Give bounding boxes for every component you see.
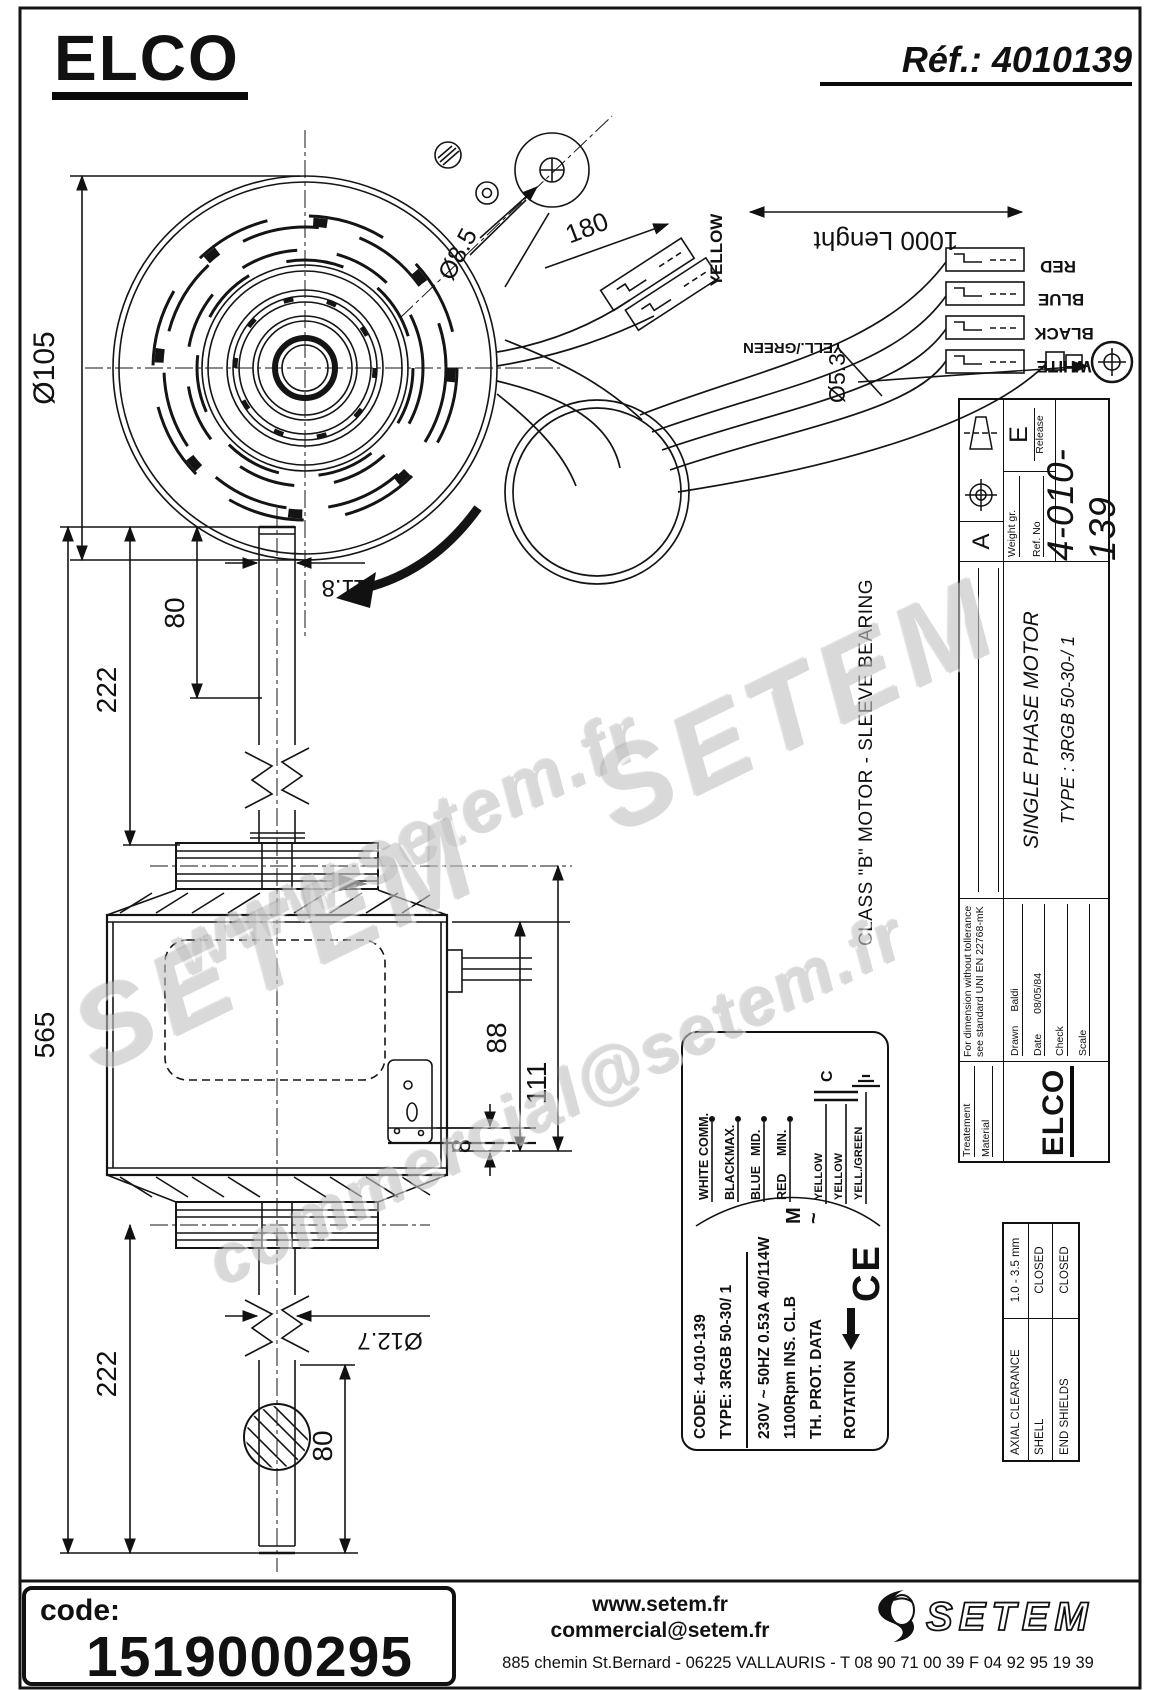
dim-label-80t: 80 (159, 597, 190, 628)
wire-label-black: BLACK (1034, 324, 1094, 343)
cap-wire: YELLOW (813, 1152, 825, 1200)
motor-nameplate: CODE: 4-010-139 TYPE: 3RGB 50-30/ 1 230V… (680, 1028, 892, 1452)
wire-function: COMM. (697, 1113, 711, 1156)
nameplate-type: TYPE: 3RGB 50-30/ 1 (718, 1285, 736, 1439)
dim-label-127: Ø12.7 (357, 1327, 422, 1354)
dim-label-105: Ø105 (28, 331, 61, 404)
spec-row-value: CLOSED (1029, 1222, 1054, 1318)
drawing-type: TYPE : 3RGB 50-30-/ 1 (1058, 562, 1079, 898)
nameplate-power: 230V ~ 50HZ 0.53A 40/114W (756, 1237, 774, 1439)
date-label: Date (1033, 1034, 1045, 1056)
spec-row-label: END SHIELDS (1053, 1318, 1078, 1460)
dim-label-88: 88 (481, 1022, 512, 1053)
wire-function: MID. (749, 1130, 763, 1156)
dim-label-53: Ø5.3 (824, 353, 850, 403)
dim-label-222b: 222 (91, 1351, 122, 1398)
footer-address: 885 chemin St.Bernard - 06225 VALLAURIS … (460, 1654, 1136, 1673)
spec-table: AXIAL CLEARANCE 1.0 - 3.5 mm SHELL CLOSE… (1002, 1222, 1080, 1462)
setem-logo: SETEM (856, 1584, 1136, 1648)
dim-label-80b: 80 (307, 1430, 338, 1461)
view-letter: A (960, 521, 1004, 561)
ce-mark: CE (846, 1243, 889, 1302)
mounting-bracket (388, 1060, 536, 1143)
nameplate-rpm: 1100Rpm INS. CL.B (782, 1296, 800, 1439)
spec-row-label: AXIAL CLEARANCE (1004, 1318, 1029, 1460)
dim-label-222t: 222 (91, 667, 122, 714)
class-note: CLASS "B" MOTOR - SLEEVE BEARING (856, 510, 884, 946)
dim-label-111: 111 (521, 1062, 552, 1105)
motor-front-view (85, 116, 612, 640)
wire-color: BLUE (749, 1166, 763, 1200)
material-label: Material (981, 1066, 994, 1157)
motor-symbol: M (783, 1207, 805, 1224)
nameplate-rotation: ROTATION (842, 1308, 860, 1439)
reference-number: Réf.: 4010139 (820, 40, 1132, 86)
dim-85-leader (480, 187, 537, 238)
svg-text:~: ~ (803, 1212, 825, 1224)
projection-symbol-icon (960, 400, 1002, 521)
scale-label: Scale (1078, 904, 1091, 1056)
elco-logo-small: ELCO (1039, 1066, 1074, 1157)
nameplate-code: CODE: 4-010-139 (692, 1314, 710, 1439)
technical-drawing-page: Ø105 Ø8.5 180 1000 Lenght YELLOW RED BLU… (0, 0, 1158, 1690)
code-label: code: (40, 1594, 120, 1628)
dim-label-8: 8 (446, 1139, 476, 1153)
cap-wire: YELLOW (833, 1152, 845, 1200)
rotation-direction-arrow (842, 1308, 860, 1350)
spec-row-label: SHELL (1029, 1318, 1054, 1460)
wire-function: MAX. (723, 1125, 737, 1156)
wiring-diagram: WHITE COMM. BLACK MAX. BLUE MID. RED MIN… (680, 1030, 892, 1244)
wire-label-red: RED (1040, 257, 1076, 276)
capacitor-label: C (819, 1070, 836, 1082)
drawing-number: 4-010-139 (1040, 398, 1124, 561)
treatement-label: Treatement (962, 1066, 975, 1157)
elco-logo: ELCO (52, 26, 248, 100)
drawing-title: SINGLE PHASE MOTOR (1020, 562, 1044, 898)
wire-label-blue: BLUE (1038, 290, 1084, 309)
dim-label-1000: 1000 Lenght (813, 226, 958, 256)
wire-function: MIN. (775, 1130, 789, 1156)
wire-color: RED (775, 1174, 789, 1200)
spec-row-value: CLOSED (1053, 1222, 1078, 1318)
title-block: Treatement Material For dimension withou… (958, 398, 1110, 1163)
wire-color: WHITE (697, 1160, 711, 1200)
wire-color: BLACK (723, 1156, 737, 1200)
wire-label-white: WHITE (1037, 357, 1092, 376)
spec-row-value: 1.0 - 3.5 mm (1004, 1222, 1029, 1318)
setem-logo-text: SETEM (926, 1595, 1094, 1639)
screw-icon (435, 142, 461, 168)
screw-icon (476, 182, 498, 204)
footer-site: www.setem.fr (480, 1592, 840, 1618)
rotation-arrow (362, 508, 478, 589)
faston-connector-pair (601, 233, 719, 336)
dim-label-180: 180 (561, 206, 612, 250)
nameplate-thprot: TH. PROT. DATA (808, 1319, 826, 1439)
drawn-label: Drawn (1010, 1026, 1022, 1056)
faston-connectors (946, 248, 1024, 373)
footer-contacts: www.setem.fr commercial@setem.fr (480, 1592, 840, 1645)
check-label: Check (1055, 904, 1068, 1056)
setem-swirl-icon (878, 1590, 914, 1642)
code-box: code: 1519000295 (22, 1586, 456, 1686)
footer-email: commercial@setem.fr (480, 1618, 840, 1644)
dim-label-565: 565 (29, 1012, 60, 1059)
cap-wire: YELL./GREEN (853, 1127, 865, 1200)
dim-label-118: 11.8 (322, 574, 367, 601)
wire-label-yellow: YELLOW (707, 213, 726, 287)
tolerance-note: For dimension without tollerance (963, 903, 975, 1057)
weight-label: Weight gr. (1007, 476, 1020, 557)
release-letter: E (1005, 408, 1035, 461)
code-value: 1519000295 (86, 1624, 413, 1690)
